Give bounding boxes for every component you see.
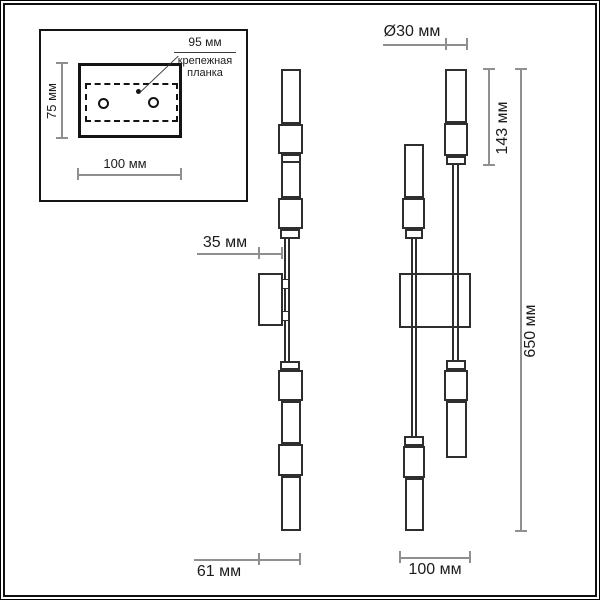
diffuser-bottom-side — [281, 476, 301, 531]
connector-tab-lower — [282, 311, 289, 321]
stem-rod-side — [284, 239, 290, 363]
dim-tick — [445, 38, 447, 50]
wall-plate-front — [399, 273, 471, 328]
diffuser-tall-bottom — [446, 401, 467, 458]
dim-tick — [515, 68, 527, 70]
stem-rod-tall — [452, 165, 459, 362]
mounting-detail-inset: 95 мм крепежная планка 75 мм 100 мм — [39, 29, 248, 202]
sleeve-short-top — [402, 198, 425, 229]
sleeve-side-1 — [278, 124, 303, 154]
diffuser-top-side — [281, 69, 301, 124]
leader-underline — [174, 52, 236, 53]
dim-line-plate-width-front — [399, 557, 471, 559]
sleeve-side-2 — [278, 198, 303, 229]
sleeve-tall-bottom — [444, 370, 468, 401]
dim-line-plate-height — [61, 63, 63, 138]
label-plate-width-front: 100 мм — [399, 561, 471, 579]
label-total-height: 650 мм — [522, 296, 538, 366]
cap-short-top — [405, 229, 423, 239]
dim-tick — [515, 530, 527, 532]
dim-line-plate-width — [77, 174, 182, 176]
label-rod-offset: 35 мм — [197, 234, 253, 252]
label-bracket-caption-line2: планка — [165, 67, 245, 79]
dim-line-fixture-depth — [194, 559, 301, 561]
cap-tall-top — [446, 156, 466, 165]
cap-short-bottom — [404, 436, 424, 446]
dim-tick — [281, 247, 283, 259]
dim-tick — [77, 168, 79, 180]
label-bracket-caption-line1: крепежная — [165, 55, 245, 67]
sleeve-side-3 — [278, 370, 303, 401]
dim-tick — [483, 164, 495, 166]
screw-hole-left — [98, 98, 109, 109]
cap-side-lower — [280, 361, 300, 370]
label-bracket-caption: крепежная планка — [165, 55, 245, 79]
diffuser-short-top — [404, 144, 424, 198]
sleeve-side-4 — [278, 444, 303, 476]
cap-tall-bottom — [446, 360, 466, 370]
dim-tick — [258, 553, 260, 565]
stem-rod-short — [411, 239, 417, 438]
dim-tick — [56, 62, 68, 64]
sleeve-short-bottom — [403, 446, 425, 478]
dim-tick — [56, 137, 68, 139]
diffuser-low-side — [281, 401, 301, 444]
cap-side-upper — [280, 229, 300, 239]
label-head-length: 143 мм — [494, 96, 510, 160]
dim-line-rod-offset — [197, 253, 283, 255]
wall-box-side — [258, 273, 283, 326]
label-bracket-width: 95 мм — [174, 36, 236, 49]
dim-tick — [258, 247, 260, 259]
dim-tick — [466, 38, 468, 50]
sleeve-tall-top — [444, 123, 468, 156]
dim-line-head-length — [488, 69, 490, 165]
lamp-dimension-drawing: 95 мм крепежная планка 75 мм 100 мм — [0, 0, 600, 600]
dim-tick — [299, 553, 301, 565]
dim-tick — [180, 168, 182, 180]
label-plate-height: 75 мм — [45, 76, 59, 126]
dim-line-tube-diameter — [383, 44, 468, 46]
connector-tab-upper — [282, 279, 289, 289]
label-fixture-depth: 61 мм — [191, 563, 247, 581]
label-tube-diameter: Ø30 мм — [379, 23, 445, 41]
diffuser-seam — [282, 161, 300, 163]
label-plate-width: 100 мм — [100, 157, 150, 171]
diffuser-tall-top — [445, 69, 467, 123]
screw-hole-right — [148, 97, 159, 108]
dim-tick — [483, 68, 495, 70]
diffuser-short-bottom — [405, 478, 424, 531]
